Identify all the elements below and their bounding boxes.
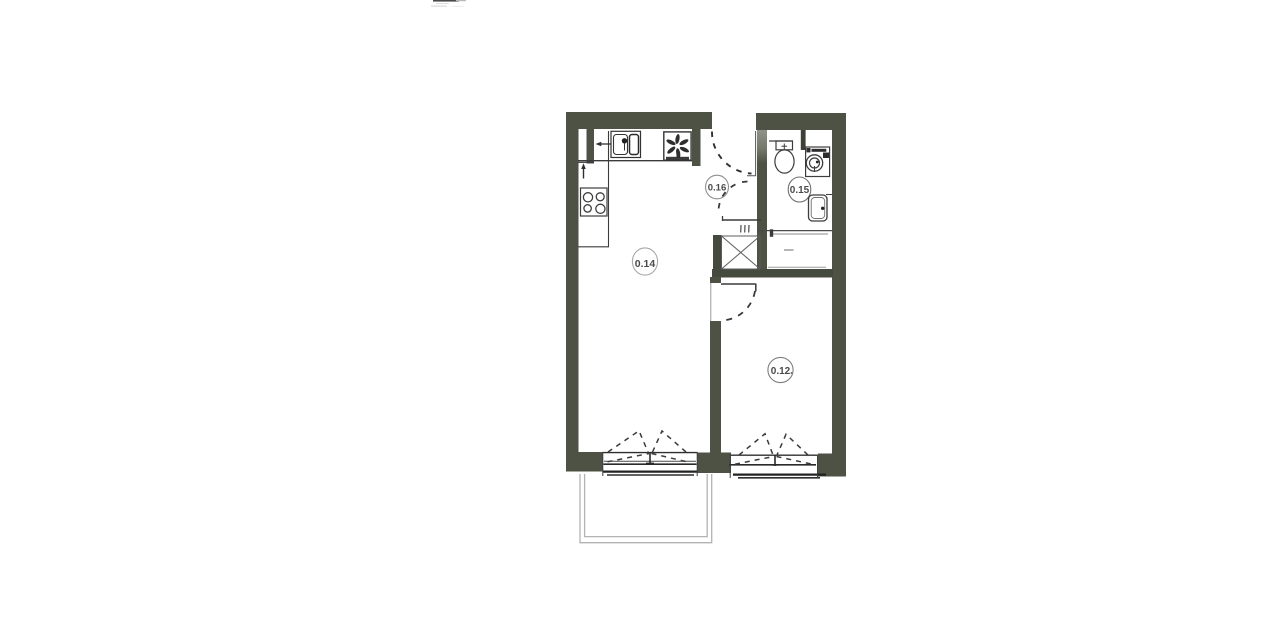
svg-text:0.14: 0.14: [635, 258, 656, 270]
svg-text:0.15: 0.15: [790, 185, 810, 196]
svg-text:0.16: 0.16: [708, 182, 727, 193]
svg-text:0.12: 0.12: [771, 366, 791, 377]
